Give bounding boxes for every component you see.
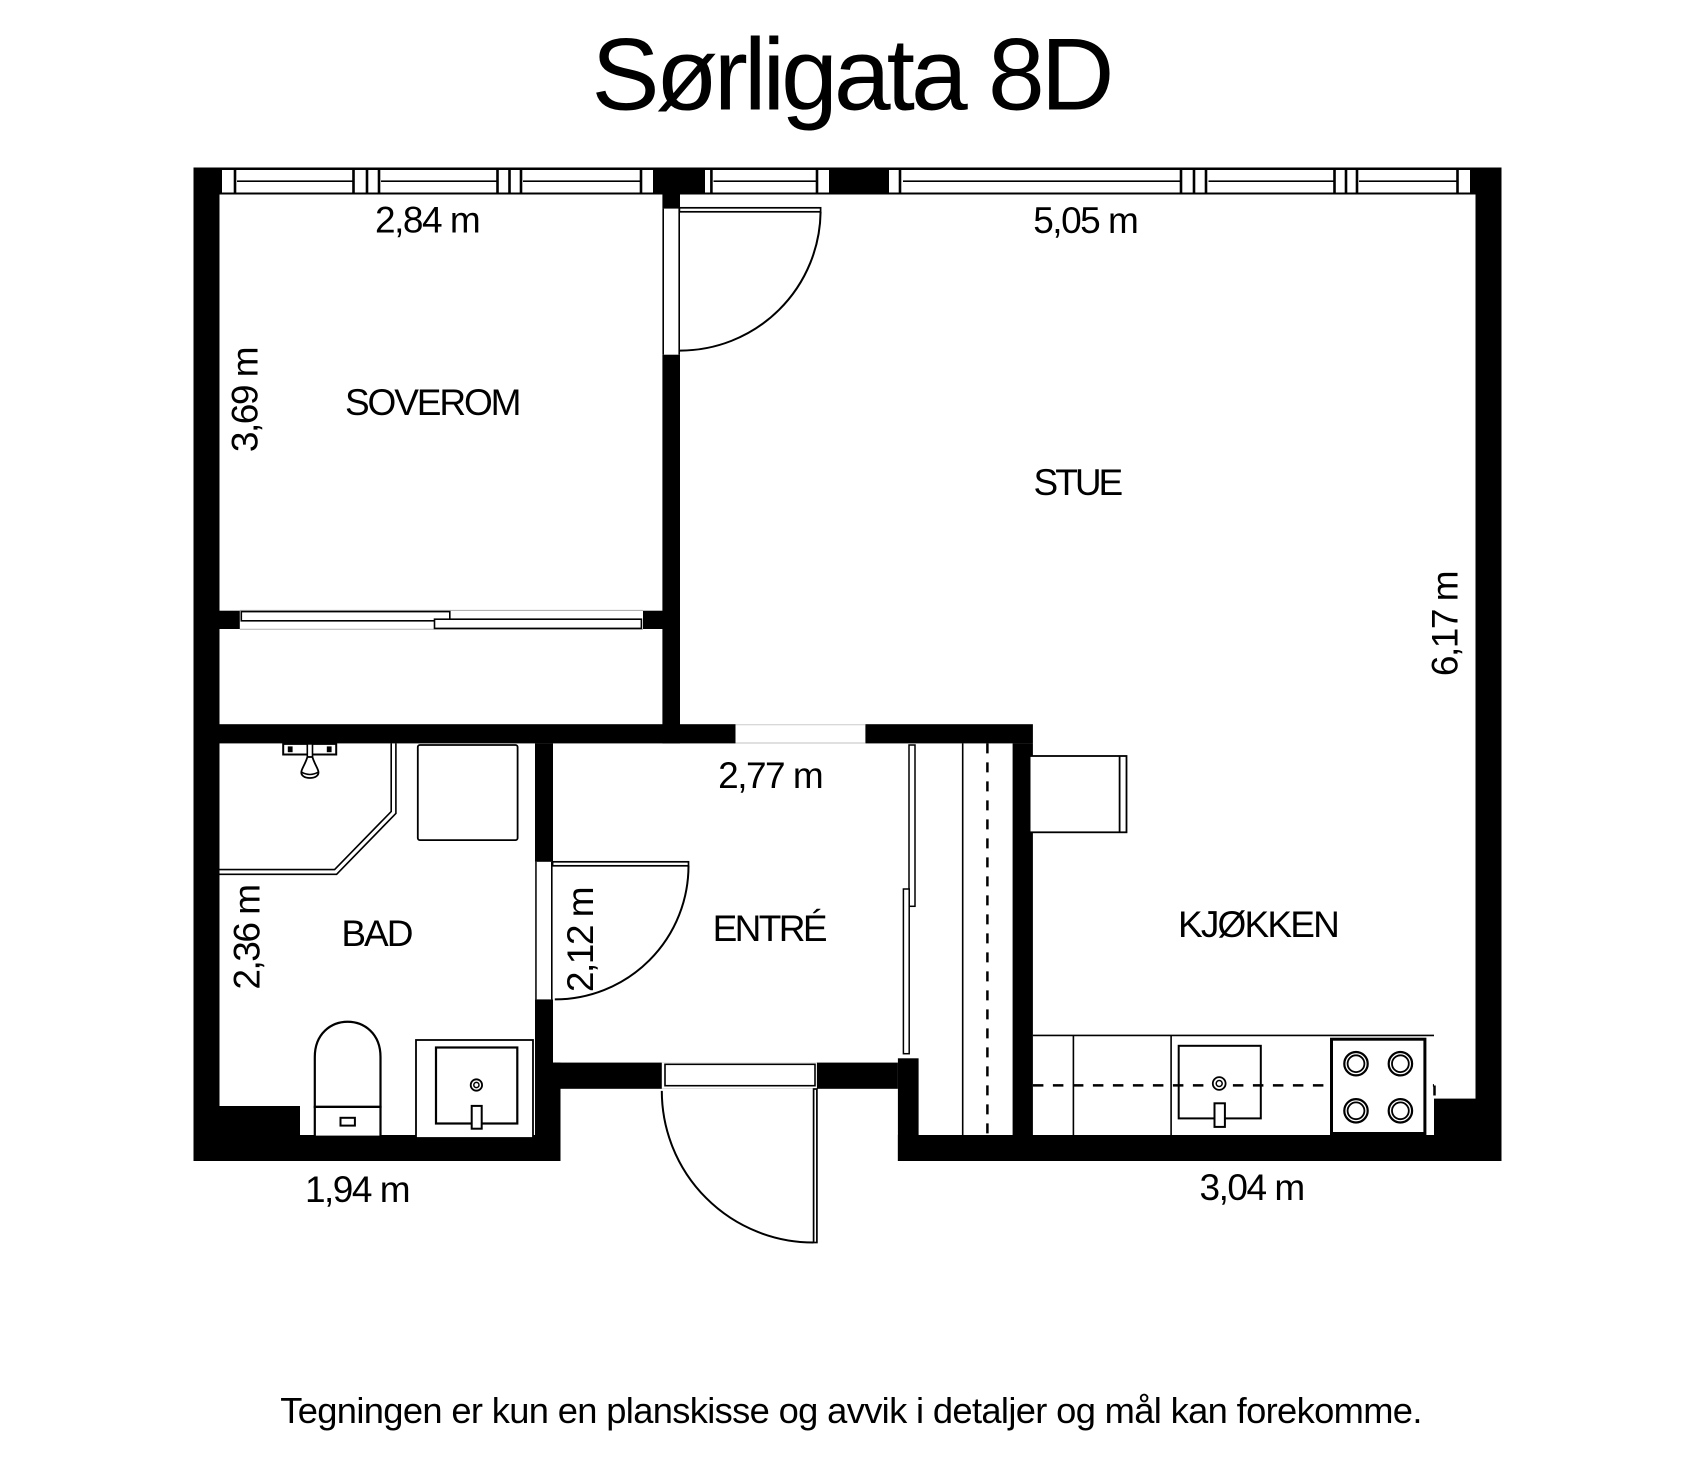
svg-text:1,94 m: 1,94 m — [305, 1169, 409, 1210]
svg-text:Sørligata 8D: Sørligata 8D — [592, 18, 1111, 132]
svg-text:KJØKKEN: KJØKKEN — [1178, 904, 1338, 945]
svg-text:BAD: BAD — [341, 913, 411, 954]
svg-text:2,12 m: 2,12 m — [560, 888, 601, 992]
svg-text:3,69 m: 3,69 m — [225, 348, 266, 452]
svg-text:2,36 m: 2,36 m — [227, 885, 268, 989]
svg-text:Tegningen er kun en planskisse: Tegningen er kun en planskisse og avvik … — [280, 1390, 1422, 1431]
svg-text:2,77 m: 2,77 m — [718, 755, 822, 796]
svg-text:2,84 m: 2,84 m — [375, 200, 479, 241]
svg-text:5,05 m: 5,05 m — [1033, 200, 1137, 241]
svg-text:SOVEROM: SOVEROM — [345, 382, 519, 423]
svg-text:3,04 m: 3,04 m — [1200, 1167, 1304, 1208]
svg-text:ENTRÉ: ENTRÉ — [713, 908, 827, 949]
svg-text:STUE: STUE — [1034, 462, 1123, 503]
svg-text:6,17 m: 6,17 m — [1425, 572, 1466, 676]
